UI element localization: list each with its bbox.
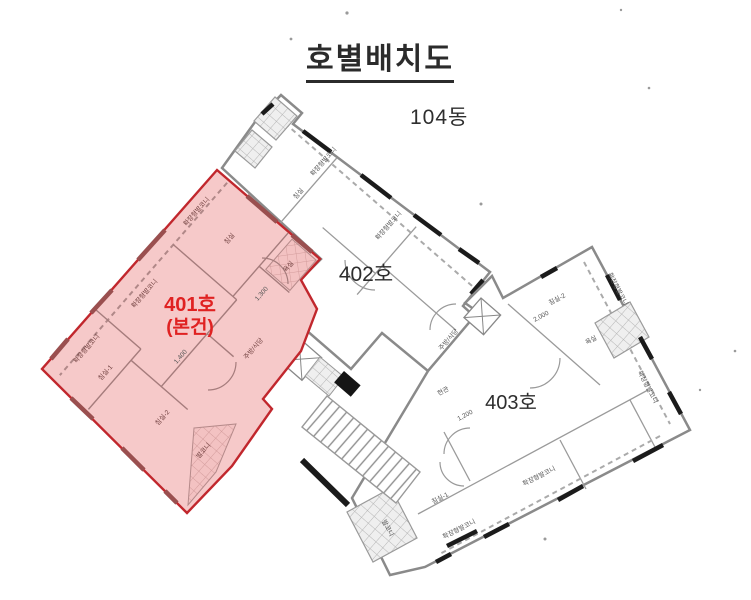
floorplan-drawing: 401호 (본건) 402호 403호 확장형발코니 확장형발코니 확장형발코니…	[0, 0, 751, 600]
page-title: 호별배치도	[306, 34, 454, 83]
unit-401-plan	[42, 170, 320, 513]
unit-402-label: 402호	[339, 263, 393, 286]
unit-401-label: 401호	[164, 293, 216, 316]
unit-401-sublabel: (본건)	[166, 316, 214, 338]
unit-401-highlight-outline	[42, 170, 320, 513]
building-label: 104동	[410, 101, 468, 131]
unit-403-label: 403호	[485, 392, 537, 414]
floorplan-page: 401호 (본건) 402호 403호 확장형발코니 확장형발코니 확장형발코니…	[0, 0, 751, 600]
